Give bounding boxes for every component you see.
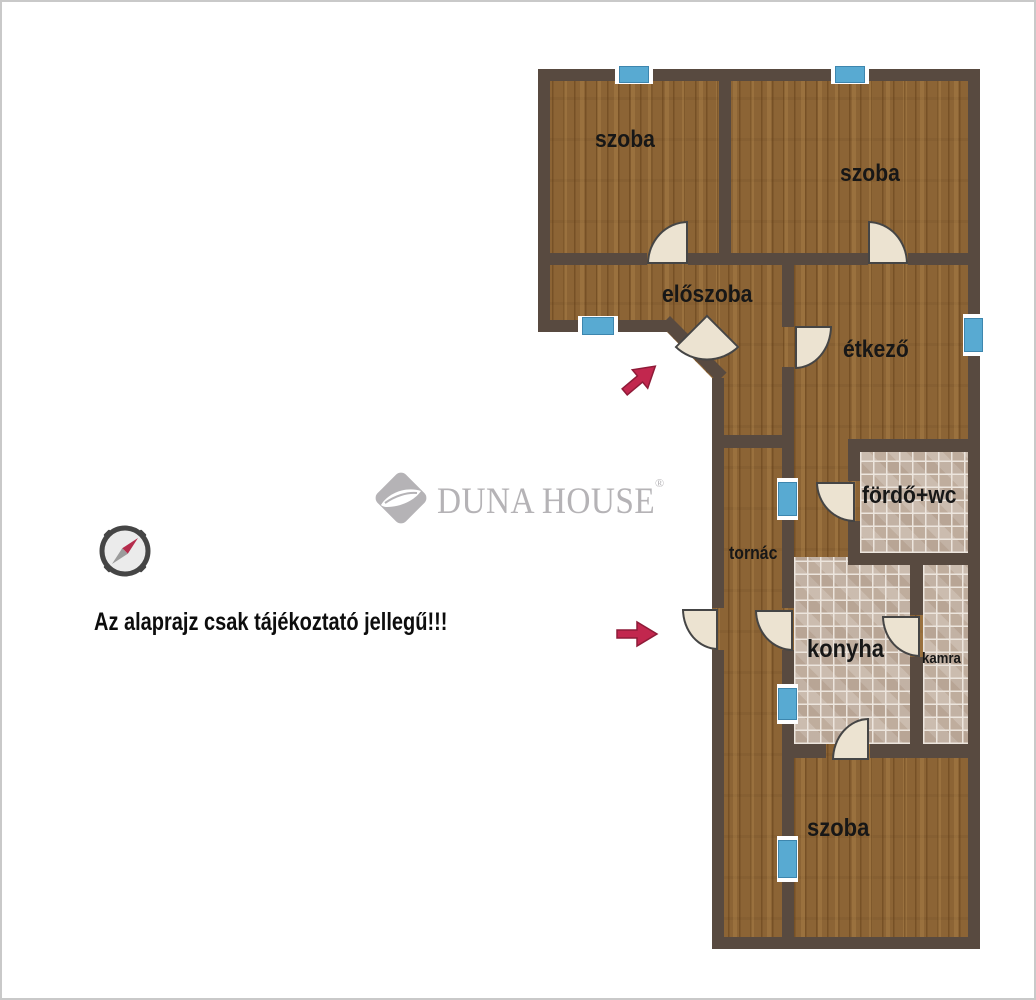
room-label-porch: tornác — [729, 543, 777, 564]
wall — [848, 439, 968, 452]
wall — [794, 744, 826, 758]
logo-text: DUNA HOUSE — [437, 480, 655, 523]
window — [615, 65, 653, 84]
room-label-room-top-left: szoba — [595, 126, 655, 154]
wall — [848, 553, 968, 565]
room-label-kitchen: konyha — [807, 635, 884, 664]
leaf-icon — [380, 484, 422, 510]
room-label-hallway: előszoba — [662, 281, 752, 309]
window-glass — [778, 482, 797, 516]
disclaimer-text: Az alaprajz csak tájékoztató jellegű!!! — [94, 608, 447, 637]
wall — [910, 565, 923, 615]
window-glass — [778, 840, 797, 878]
wall — [538, 69, 550, 332]
window — [777, 684, 798, 724]
room-label-pantry: kamra — [922, 650, 961, 667]
wall — [688, 253, 868, 265]
entrance-arrow-icon — [614, 353, 667, 404]
wall — [550, 253, 647, 265]
window-glass — [835, 66, 865, 83]
wall — [712, 378, 724, 608]
window — [777, 836, 798, 882]
window-glass — [778, 688, 797, 720]
door — [682, 609, 718, 650]
window — [831, 65, 869, 84]
window — [777, 478, 798, 520]
window — [578, 316, 618, 336]
wall — [968, 69, 980, 949]
wall — [848, 452, 860, 481]
registered-mark: ® — [655, 476, 664, 491]
wall — [724, 435, 794, 448]
entrance-arrow-icon — [615, 619, 659, 649]
wall — [538, 69, 980, 81]
compass-icon — [93, 519, 157, 583]
window-glass — [582, 317, 614, 335]
window-glass — [964, 318, 983, 352]
floorplan-canvas: szobaszobaelőszobaétkezőfördő+wctornácko… — [0, 0, 1036, 1000]
window — [963, 314, 984, 356]
room-label-bathroom: fördő+wc — [862, 482, 956, 510]
wall — [712, 937, 980, 949]
wall — [908, 253, 968, 265]
wall — [870, 744, 968, 758]
room-label-dining: étkező — [843, 336, 909, 364]
wall — [712, 650, 724, 949]
window-glass — [619, 66, 649, 83]
wall — [719, 81, 731, 253]
wall — [910, 657, 923, 744]
room-label-room-bottom: szoba — [807, 814, 869, 843]
room-label-room-top-right: szoba — [840, 160, 900, 188]
wall — [782, 265, 794, 327]
